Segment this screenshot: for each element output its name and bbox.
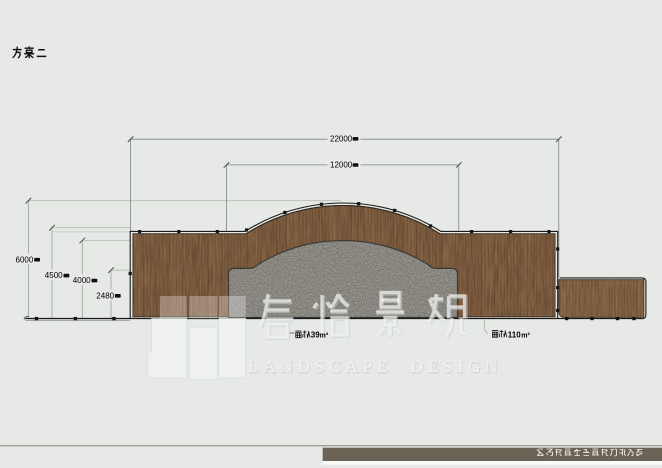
svg-text:m²: m² bbox=[320, 333, 329, 340]
svg-text:LANDSCAPE DESIGN: LANDSCAPE DESIGN bbox=[248, 357, 502, 376]
svg-text:110: 110 bbox=[508, 330, 521, 339]
svg-text:6000: 6000 bbox=[16, 255, 34, 264]
svg-text:22000: 22000 bbox=[330, 134, 353, 143]
svg-text:4000: 4000 bbox=[73, 276, 91, 285]
svg-text:12000: 12000 bbox=[330, 161, 353, 170]
svg-text:4500: 4500 bbox=[45, 271, 63, 280]
svg-text:2480: 2480 bbox=[96, 291, 114, 300]
svg-text:m²: m² bbox=[521, 332, 530, 339]
